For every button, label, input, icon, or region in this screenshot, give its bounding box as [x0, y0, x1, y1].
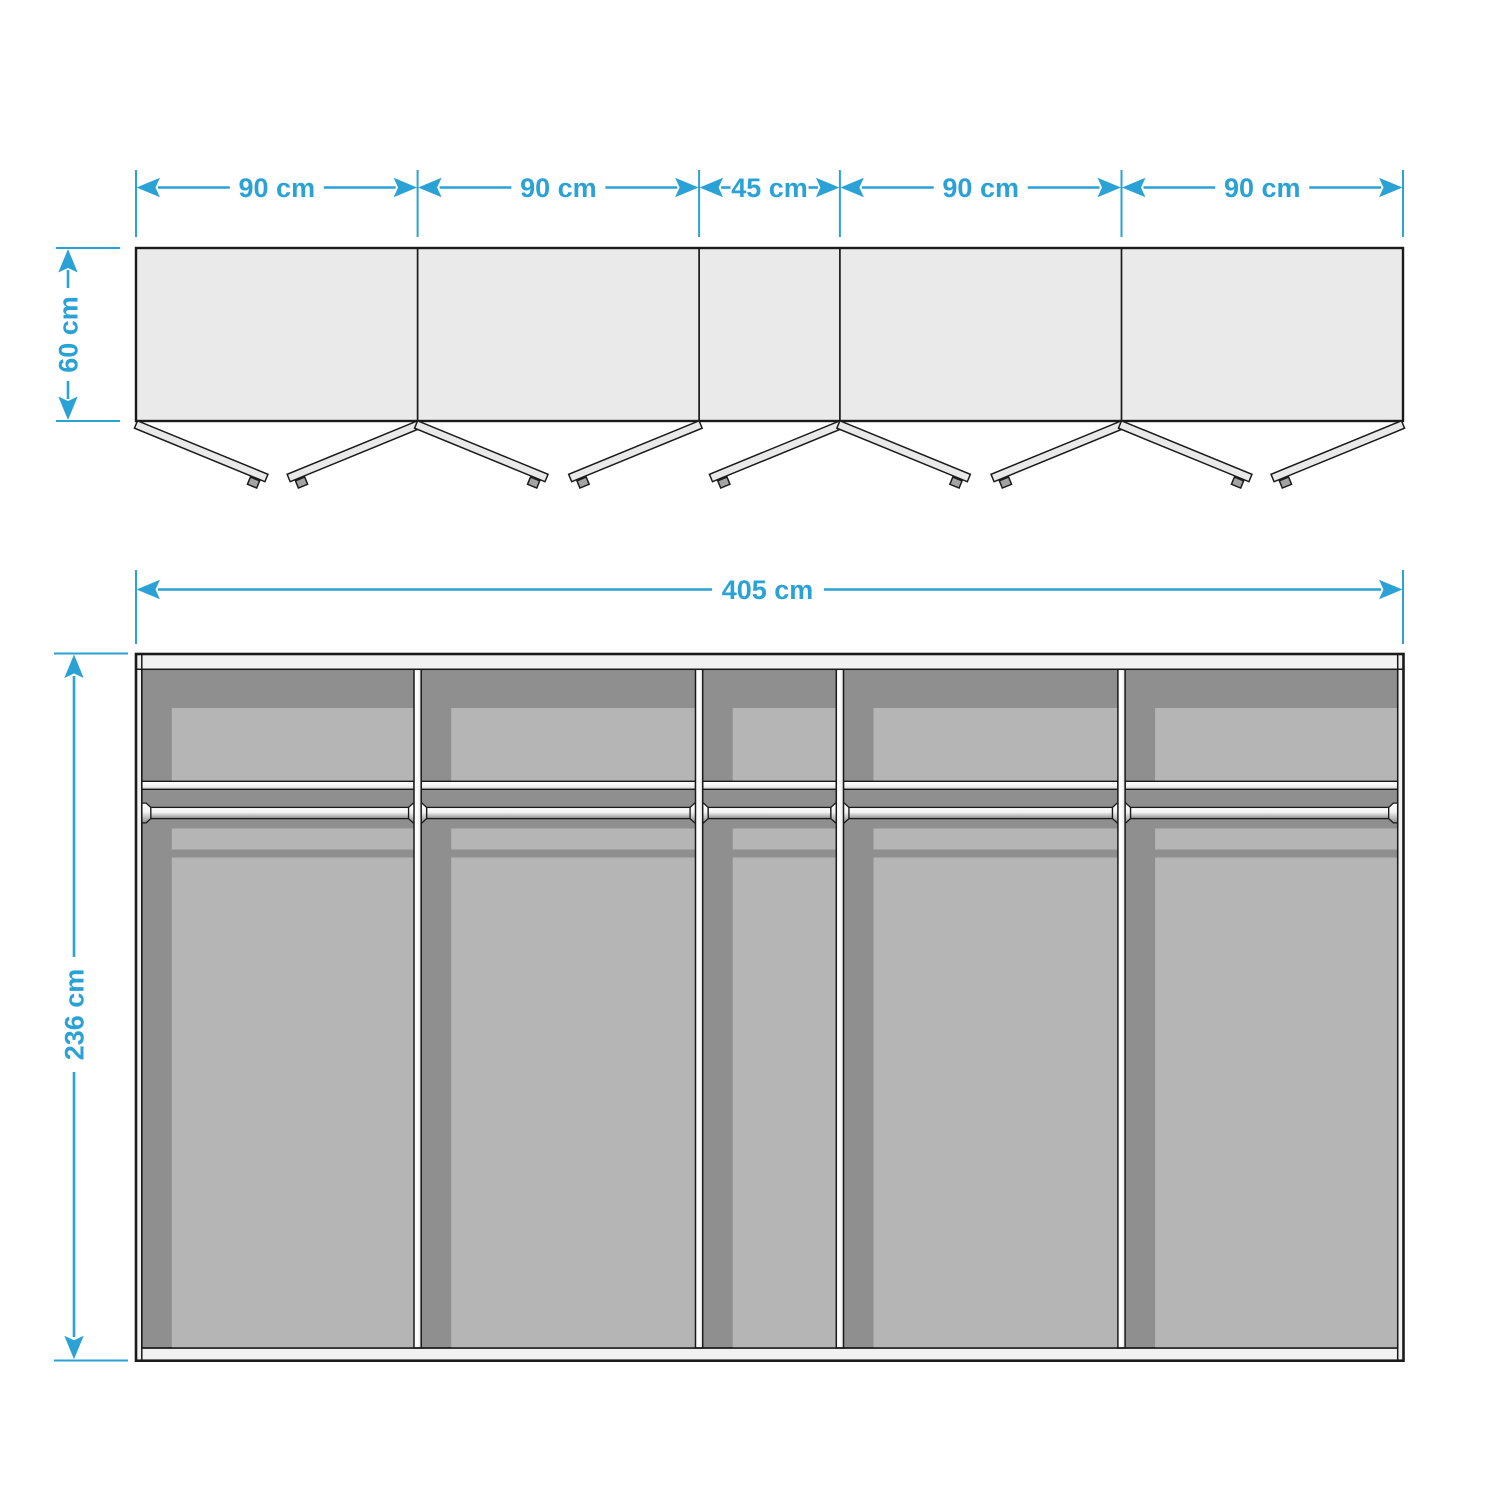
- svg-text:405 cm: 405 cm: [722, 575, 814, 605]
- svg-text:60 cm: 60 cm: [54, 296, 84, 373]
- svg-text:90 cm: 90 cm: [942, 173, 1019, 203]
- svg-text:236 cm: 236 cm: [60, 969, 90, 1061]
- svg-text:90 cm: 90 cm: [520, 173, 597, 203]
- svg-text:90 cm: 90 cm: [239, 173, 316, 203]
- svg-text:45 cm: 45 cm: [731, 173, 808, 203]
- svg-text:90 cm: 90 cm: [1224, 173, 1301, 203]
